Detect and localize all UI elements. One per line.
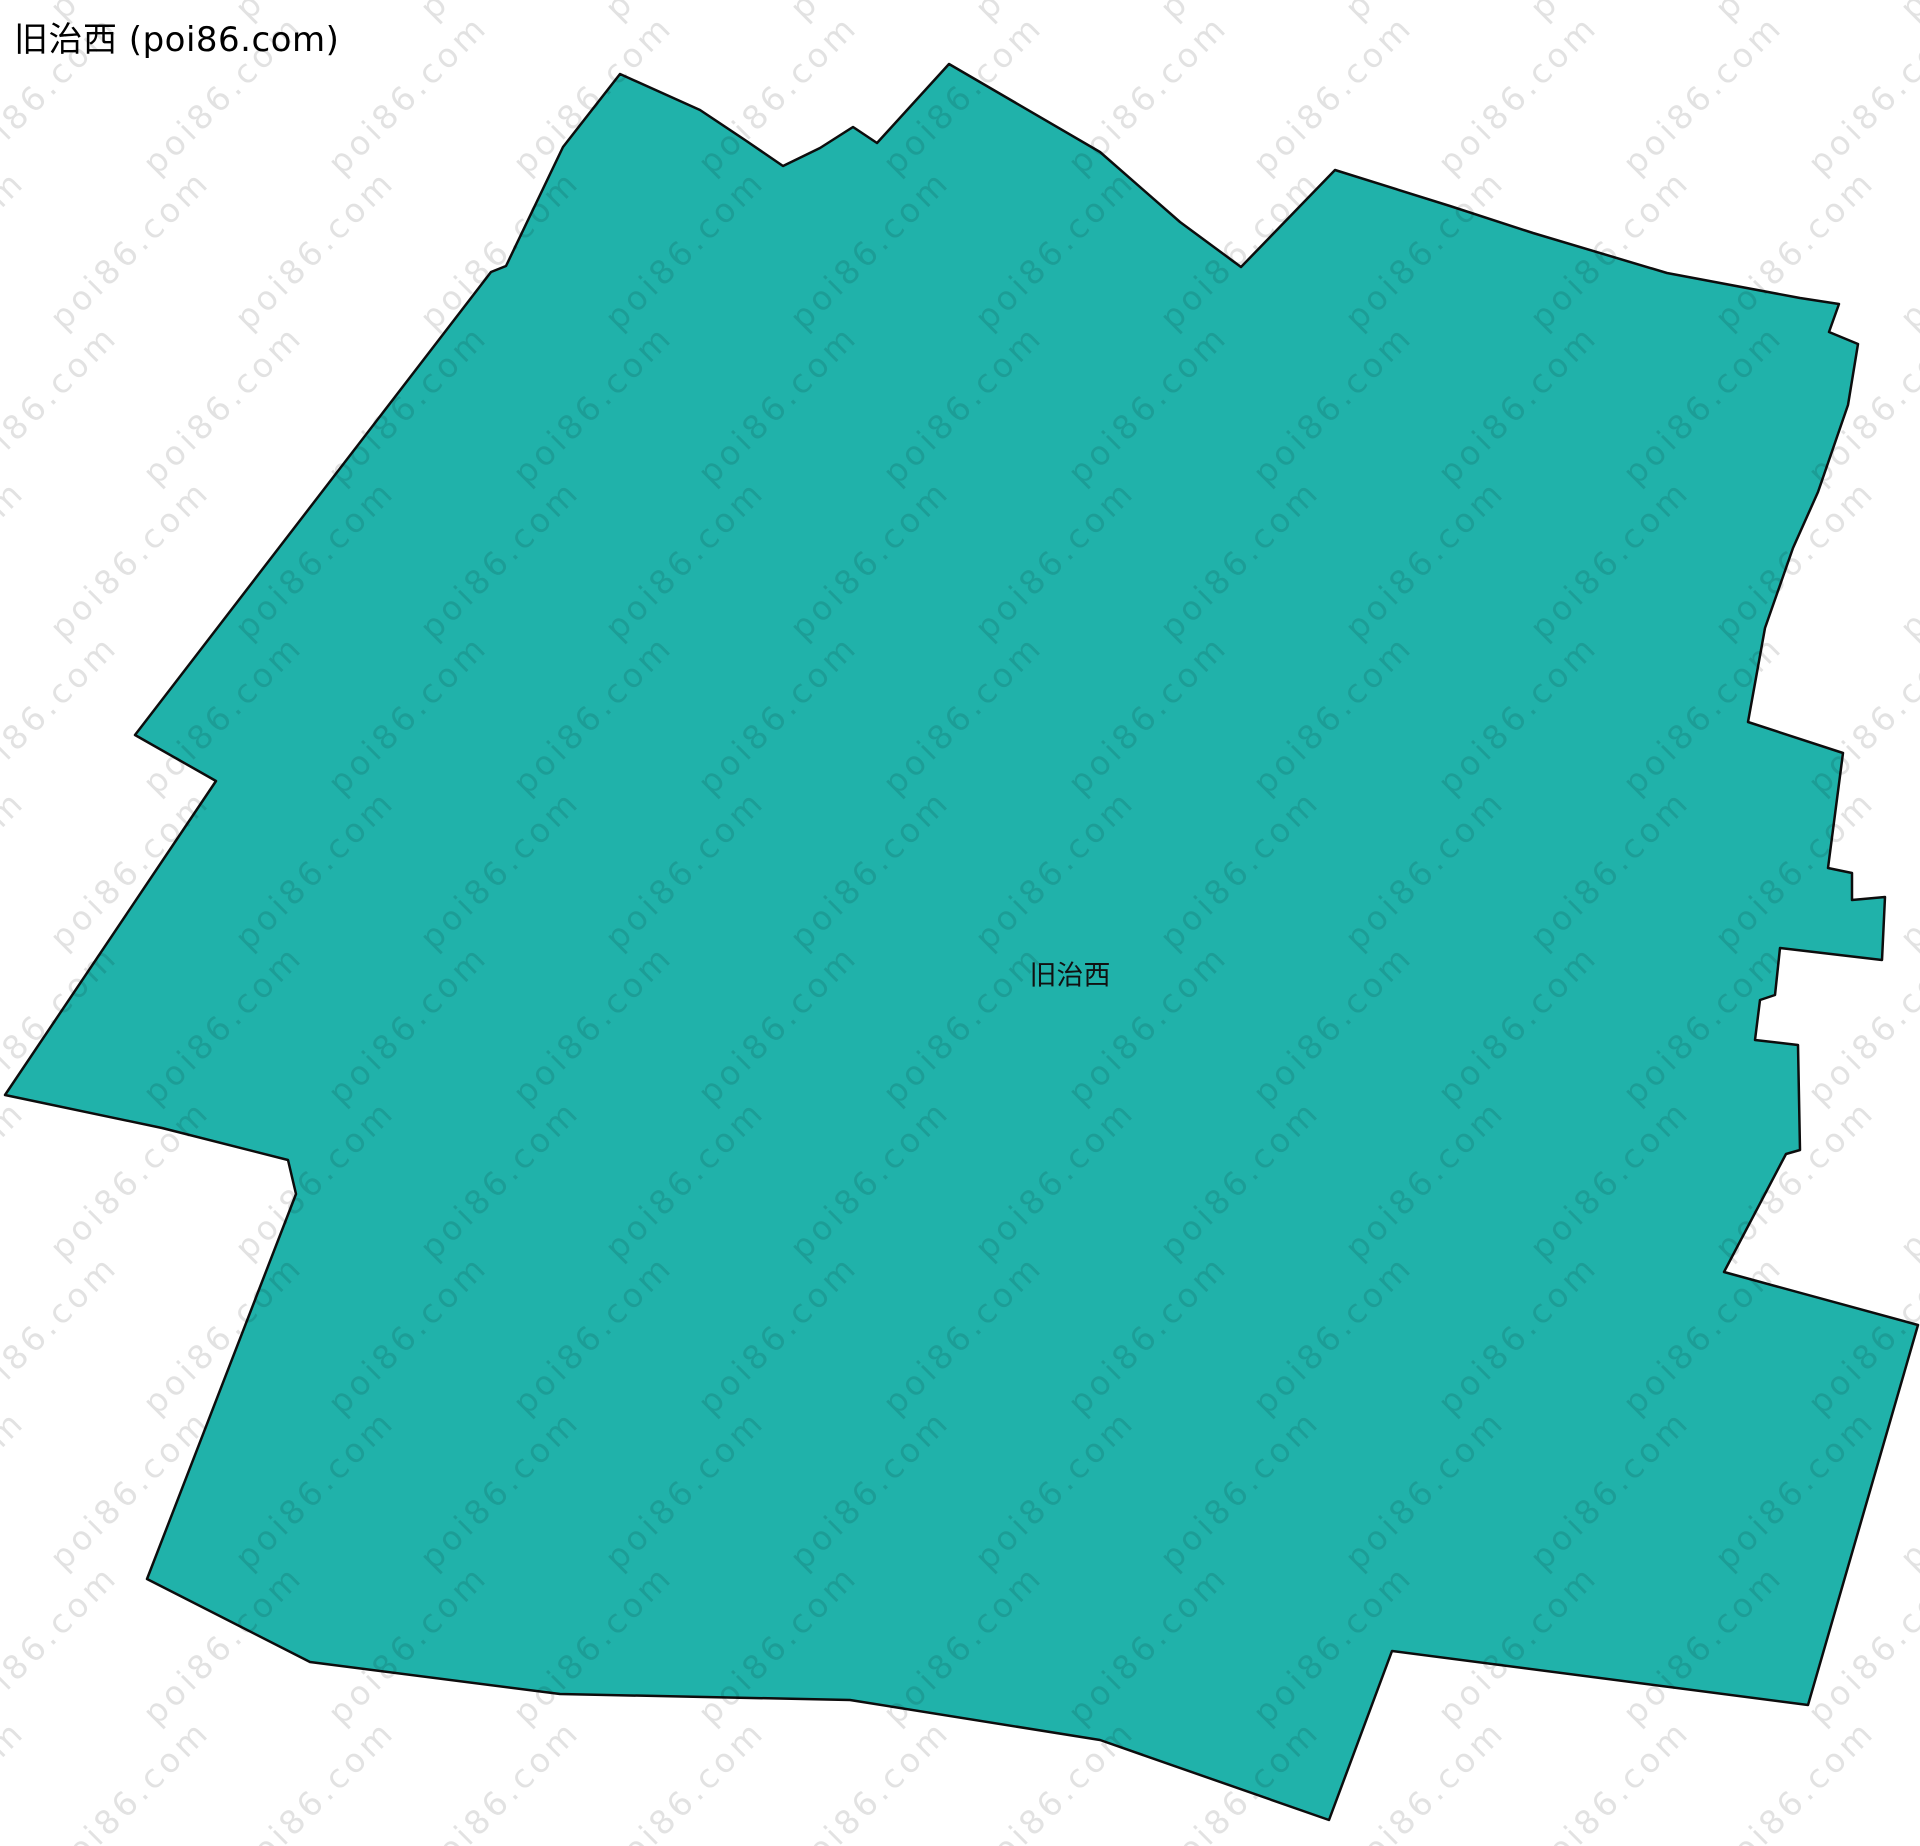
region-label: 旧治西 xyxy=(1030,954,1111,993)
page-title: 旧治西 (poi86.com) xyxy=(14,12,339,61)
region-polygon xyxy=(5,64,1918,1820)
map-page: poi86.compoi86.compoi86.compoi86.compoi8… xyxy=(0,0,1920,1846)
map-canvas xyxy=(0,0,1920,1846)
